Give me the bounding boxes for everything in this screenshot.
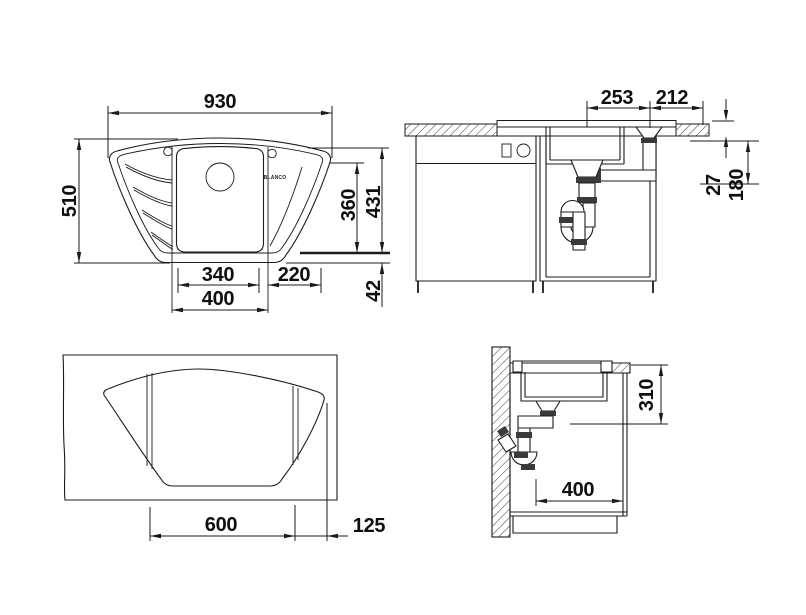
front-section-view: 253 212 27 180 — [405, 87, 759, 293]
dim-label-125: 125 — [353, 515, 386, 537]
sink-outline — [109, 138, 330, 263]
cutout-module-lines — [147, 373, 298, 469]
dim-label-180: 180 — [726, 169, 748, 202]
dim-label-400: 400 — [202, 288, 235, 310]
cutout-view: 600 125 — [63, 355, 385, 541]
plan-view: BLANCO 930 510 360 — [59, 91, 390, 313]
dim-label-42: 42 — [363, 280, 385, 302]
dim-label-510: 510 — [59, 185, 81, 218]
dim-310: 310 — [570, 365, 668, 424]
cabinet-handle-icons — [502, 144, 530, 157]
dim-220: 220 — [268, 264, 321, 293]
side-bowl — [521, 372, 607, 401]
side-countertop — [510, 361, 630, 373]
bowl — [177, 147, 264, 252]
dim-label-212: 212 — [656, 87, 689, 109]
technical-drawing-page: BLANCO 930 510 360 — [0, 0, 806, 615]
dim-label-360: 360 — [338, 189, 360, 222]
dim-125: 125 — [327, 403, 385, 541]
dim-360: 360 — [330, 163, 364, 253]
overflow-pipe — [595, 127, 662, 183]
dim-400-side: 400 — [536, 479, 623, 506]
worktop-sheet — [63, 355, 337, 500]
dim-label-220: 220 — [278, 264, 311, 286]
dim-label-27: 27 — [703, 174, 725, 196]
dim-label-600: 600 — [205, 514, 238, 536]
drain-trap — [559, 160, 603, 250]
dim-212: 212 — [650, 87, 703, 125]
dim-label-310: 310 — [636, 379, 658, 412]
dim-label-340: 340 — [202, 264, 235, 286]
drain-hole — [206, 163, 234, 191]
dim-label-253: 253 — [601, 87, 634, 109]
cutout-outline — [104, 369, 325, 486]
tap-hole-left — [164, 147, 173, 156]
dim-600: 600 — [150, 505, 348, 541]
dim-label-400-side: 400 — [562, 479, 595, 501]
dim-label-431: 431 — [363, 186, 385, 219]
drawing-canvas: BLANCO 930 510 360 — [0, 0, 806, 615]
tap-hole-right — [268, 149, 277, 158]
bowl-section — [546, 127, 624, 164]
drainboard-grooves — [125, 164, 173, 250]
side-section-view: 310 400 — [492, 347, 668, 537]
dim-400: 400 — [172, 288, 268, 312]
cabinet-feet — [418, 281, 653, 293]
dim-label-930: 930 — [204, 91, 237, 113]
logo-text: BLANCO — [264, 175, 287, 181]
dim-930: 930 — [108, 91, 332, 158]
